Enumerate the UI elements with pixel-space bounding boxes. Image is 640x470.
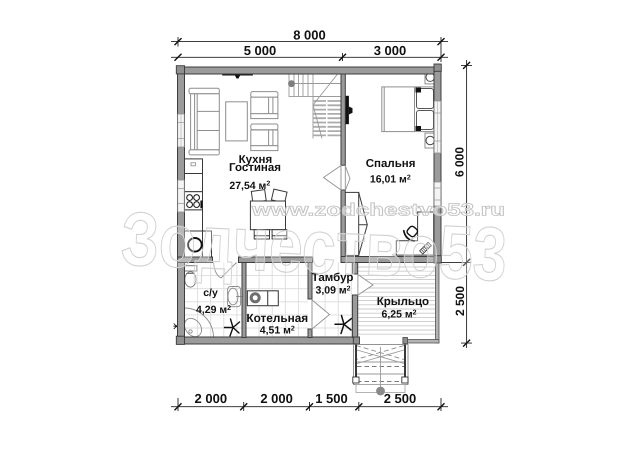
svg-text:3 000: 3 000 <box>374 43 407 58</box>
svg-text:5 000: 5 000 <box>244 43 277 58</box>
svg-text:16,01 м2: 16,01 м2 <box>370 174 411 186</box>
svg-text:с/у: с/у <box>203 287 218 299</box>
svg-text:2 000: 2 000 <box>260 391 293 406</box>
svg-text:6 000: 6 000 <box>453 147 467 177</box>
svg-text:4,29 м2: 4,29 м2 <box>196 304 231 316</box>
svg-text:6,25 м2: 6,25 м2 <box>381 308 416 320</box>
svg-text:2 500: 2 500 <box>384 391 417 406</box>
svg-text:1 500: 1 500 <box>315 391 348 406</box>
svg-text:Котельная: Котельная <box>246 311 308 325</box>
svg-text:Гостиная: Гостиная <box>229 162 281 174</box>
svg-text:Спальня: Спальня <box>366 158 416 170</box>
svg-text:27,54 м2: 27,54 м2 <box>229 180 270 192</box>
svg-text:Зодчество53: Зодчество53 <box>119 197 508 298</box>
svg-text:2 000: 2 000 <box>195 391 228 406</box>
svg-text:4,51 м2: 4,51 м2 <box>260 325 295 337</box>
svg-text:Крыльцо: Крыльцо <box>377 296 429 308</box>
svg-text:8 000: 8 000 <box>293 28 326 43</box>
